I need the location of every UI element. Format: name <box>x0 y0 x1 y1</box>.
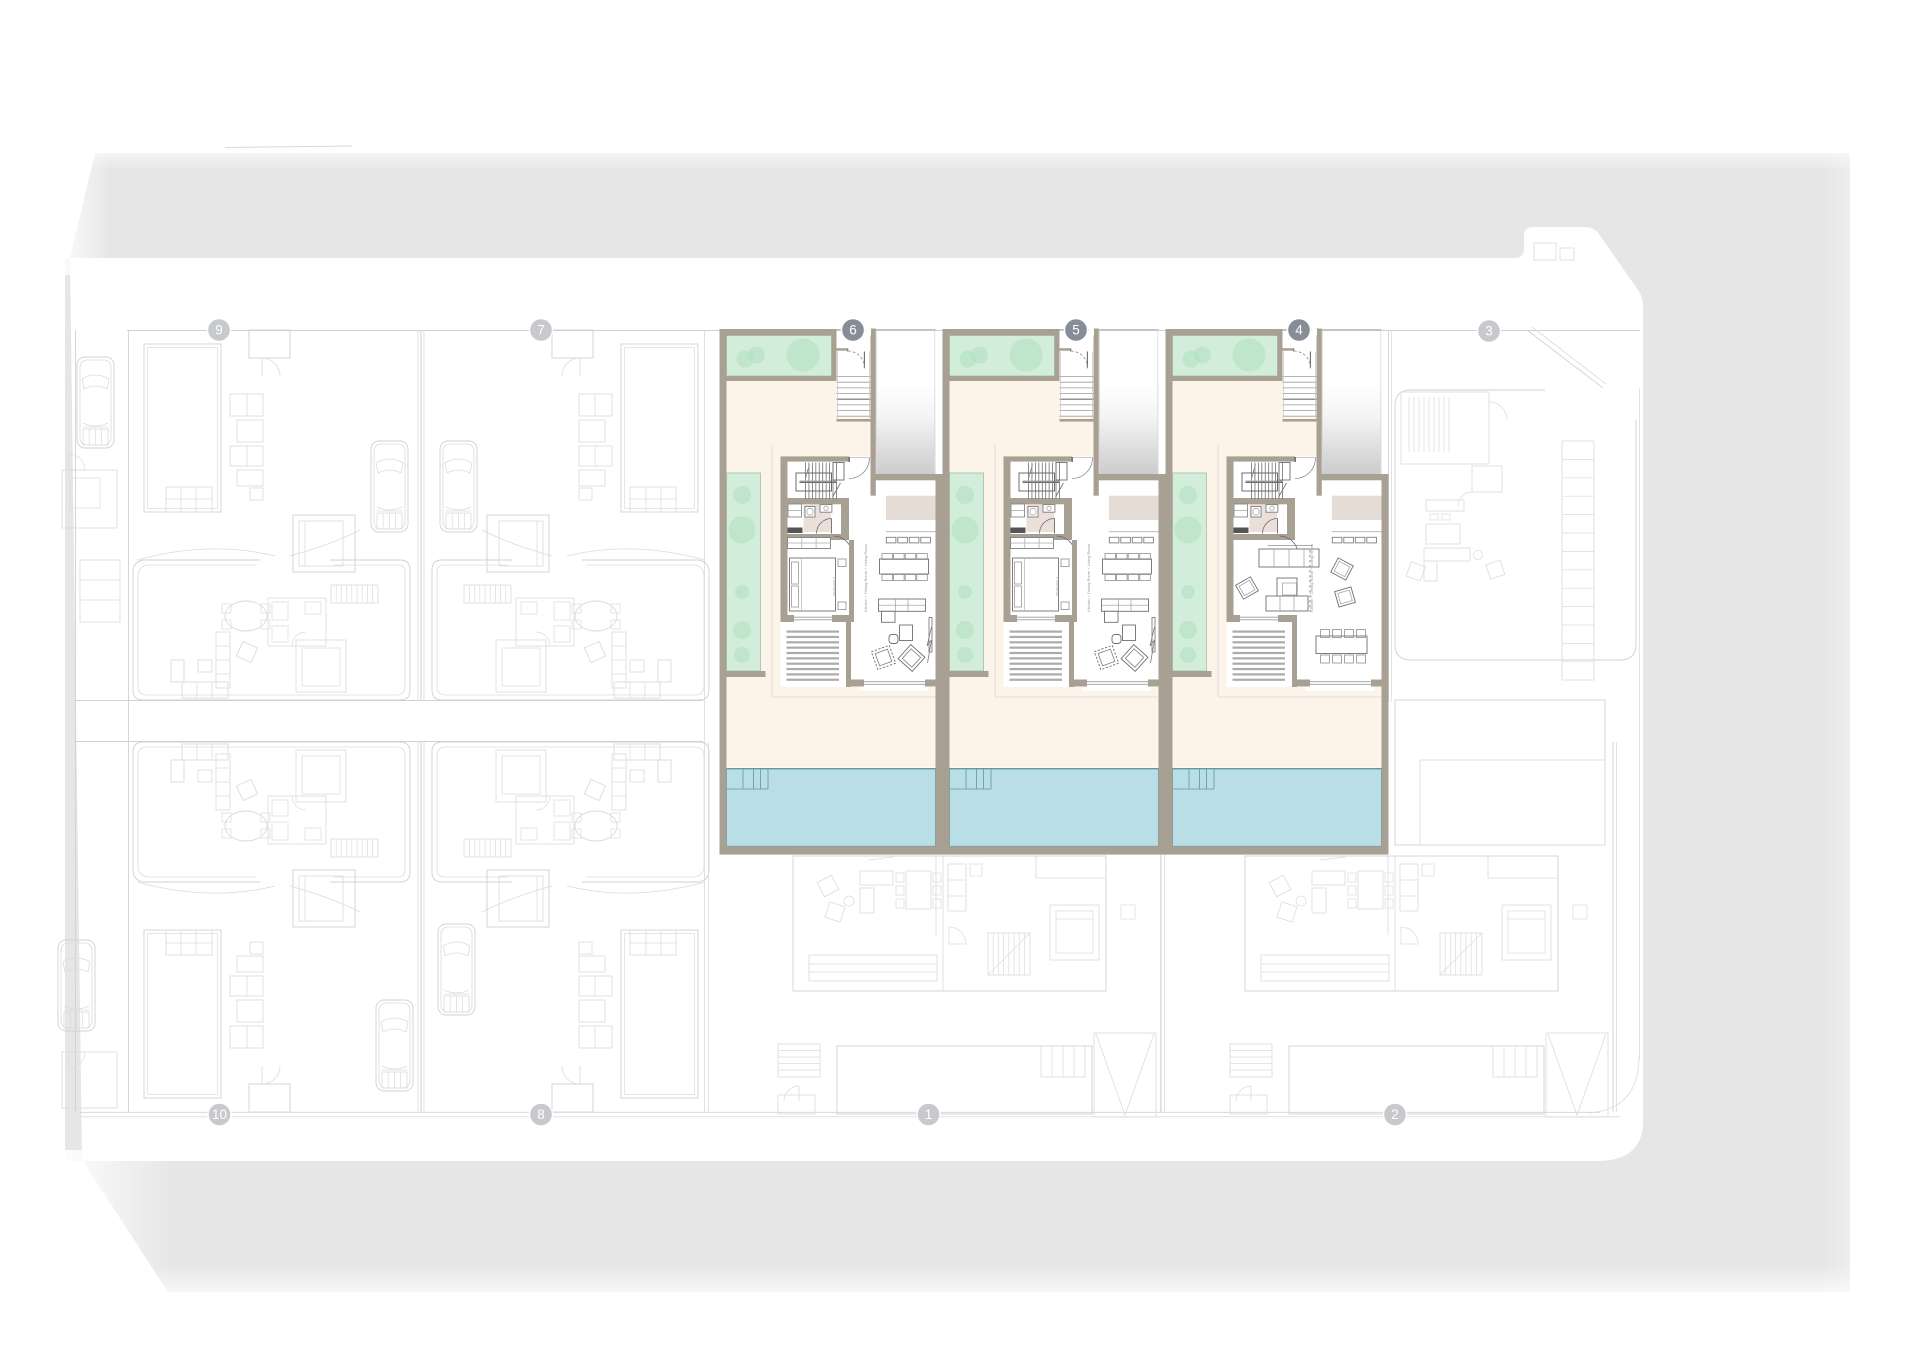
svg-text:3: 3 <box>1485 324 1493 339</box>
svg-text:Bedroom 1: Bedroom 1 <box>832 575 837 595</box>
svg-text:5: 5 <box>1072 323 1080 338</box>
svg-text:9: 9 <box>215 323 223 338</box>
svg-text:Bedroom 1: Bedroom 1 <box>1055 575 1060 595</box>
svg-text:10: 10 <box>212 1107 227 1122</box>
svg-text:7: 7 <box>537 323 545 338</box>
svg-text:Kitchen + Dining Room + Living: Kitchen + Dining Room + Living Room <box>863 543 868 611</box>
svg-text:Kitchen + Dining Room + Living: Kitchen + Dining Room + Living Room <box>1309 543 1314 611</box>
svg-text:2: 2 <box>1391 1107 1399 1122</box>
svg-text:1: 1 <box>925 1107 933 1122</box>
svg-text:6: 6 <box>849 323 857 338</box>
svg-text:4: 4 <box>1295 323 1303 338</box>
svg-text:8: 8 <box>537 1107 545 1122</box>
svg-text:Kitchen + Dining Room + Living: Kitchen + Dining Room + Living Room <box>1086 543 1091 611</box>
